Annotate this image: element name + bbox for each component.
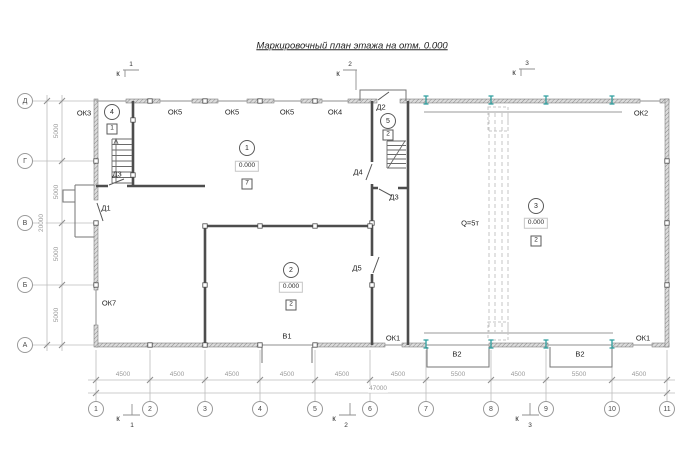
grid-column-bubble-3: 3	[197, 401, 213, 417]
room-3-finish-mark: 2	[531, 236, 542, 247]
column-marks	[94, 99, 669, 347]
room-4-finish-mark: 1	[107, 124, 118, 135]
grid-row-bubble-d: Д	[17, 93, 33, 109]
section-mark-k3-bottom: к	[515, 415, 519, 423]
plan-title: Маркировочный план этажа на отм. 0.000	[256, 41, 447, 51]
dim-row-1: 5000	[54, 123, 61, 139]
window-label-ok1-1: ОК1	[386, 334, 400, 342]
grid-column-bubble-7: 7	[418, 401, 434, 417]
dim-col-7: 5500	[450, 372, 466, 379]
door-label-d4: Д4	[353, 168, 362, 176]
dim-col-1: 4500	[115, 372, 131, 379]
dim-col-6: 4500	[390, 372, 406, 379]
door-label-d5: Д5	[352, 264, 361, 272]
grid-row-bubble-b: Б	[17, 277, 33, 293]
grid-column-bubble-11: 11	[659, 401, 675, 417]
window-lines	[96, 101, 660, 345]
dim-total-depth: 20000	[39, 213, 46, 233]
grid-column-bubble-6: 6	[362, 401, 378, 417]
dim-row-2: 5000	[54, 184, 61, 200]
section-mark-k3-top: к	[512, 69, 516, 77]
window-label-ok5-3: ОК5	[280, 108, 294, 116]
room-1-number-bubble: 1	[239, 140, 255, 156]
window-label-ok3: ОК3	[77, 109, 91, 117]
section-mark-k2-top: к	[336, 70, 340, 78]
porches	[63, 90, 612, 367]
section-number-1-top: 1	[129, 62, 133, 69]
dim-col-4: 4500	[279, 372, 295, 379]
window-label-ok5-1: ОК5	[168, 108, 182, 116]
grid-column-bubble-1: 1	[88, 401, 104, 417]
door-label-d2: Д2	[376, 103, 385, 111]
section-mark-k1-top: к	[116, 70, 120, 78]
dim-row-4: 5000	[54, 307, 61, 323]
window-label-ok7: ОК7	[102, 299, 116, 307]
gate-label-v2-2: В2	[575, 350, 584, 358]
window-label-ok1-2: ОК1	[636, 334, 650, 342]
section-number-3-top: 3	[525, 61, 529, 68]
dim-col-3: 4500	[224, 372, 240, 379]
grid-row-bubble-v: В	[17, 215, 33, 231]
door-label-d3-1: Д3	[112, 170, 121, 178]
gate-label-v2-1: В2	[452, 350, 461, 358]
dim-total-length: 47000	[368, 386, 388, 393]
section-number-3-bottom: 3	[528, 423, 532, 430]
room-2-finish-mark: 2	[286, 300, 297, 311]
room-1-finish-mark: 7	[242, 179, 253, 190]
section-mark-k1-bottom: к	[116, 415, 120, 423]
exterior-walls	[94, 99, 669, 347]
crane-column-marks	[424, 96, 615, 348]
window-label-ok4: ОК4	[328, 108, 342, 116]
plan-linework	[0, 0, 700, 474]
dim-col-5: 4500	[334, 372, 350, 379]
dim-col-9: 5500	[571, 372, 587, 379]
window-label-ok5-2: ОК5	[225, 108, 239, 116]
grid-column-bubble-9: 9	[538, 401, 554, 417]
grid-column-bubble-4: 4	[252, 401, 268, 417]
room-2-number-bubble: 2	[283, 262, 299, 278]
dim-col-8: 4500	[510, 372, 526, 379]
grid-column-bubble-10: 10	[604, 401, 620, 417]
grid-column-bubble-5: 5	[307, 401, 323, 417]
section-mark-k2-bottom: к	[332, 415, 336, 423]
grid-row-bubble-g: Г	[17, 153, 33, 169]
room-2-elevation: 0.000	[279, 282, 303, 293]
room-5-number-bubble: 5	[380, 113, 396, 129]
dim-col-2: 4500	[169, 372, 185, 379]
grid-row-bubble-a: А	[17, 337, 33, 353]
section-number-1-bottom: 1	[130, 423, 134, 430]
section-mark-lines	[123, 69, 539, 415]
section-number-2-top: 2	[348, 62, 352, 69]
room-4-number-bubble: 4	[104, 104, 120, 120]
window-label-ok2: ОК2	[634, 109, 648, 117]
grid-column-bubble-2: 2	[142, 401, 158, 417]
room-3-number-bubble: 3	[528, 198, 544, 214]
grid-column-bubble-8: 8	[483, 401, 499, 417]
room-1-elevation: 0.000	[235, 161, 259, 172]
room-5-finish-mark: 2	[383, 130, 394, 141]
dim-col-10: 4500	[631, 372, 647, 379]
door-label-d3-2: Д3	[389, 193, 398, 201]
dim-row-3: 5000	[54, 246, 61, 262]
section-number-2-bottom: 2	[344, 423, 348, 430]
gate-label-v1: В1	[282, 332, 291, 340]
floor-plan-canvas: Маркировочный план этажа на отм. 0.000 О…	[0, 0, 700, 474]
room-3-elevation: 0.000	[524, 218, 548, 229]
door-label-d1: Д1	[101, 204, 110, 212]
crane-capacity-label: Q=5т	[461, 219, 479, 227]
interior-walls	[96, 101, 408, 345]
